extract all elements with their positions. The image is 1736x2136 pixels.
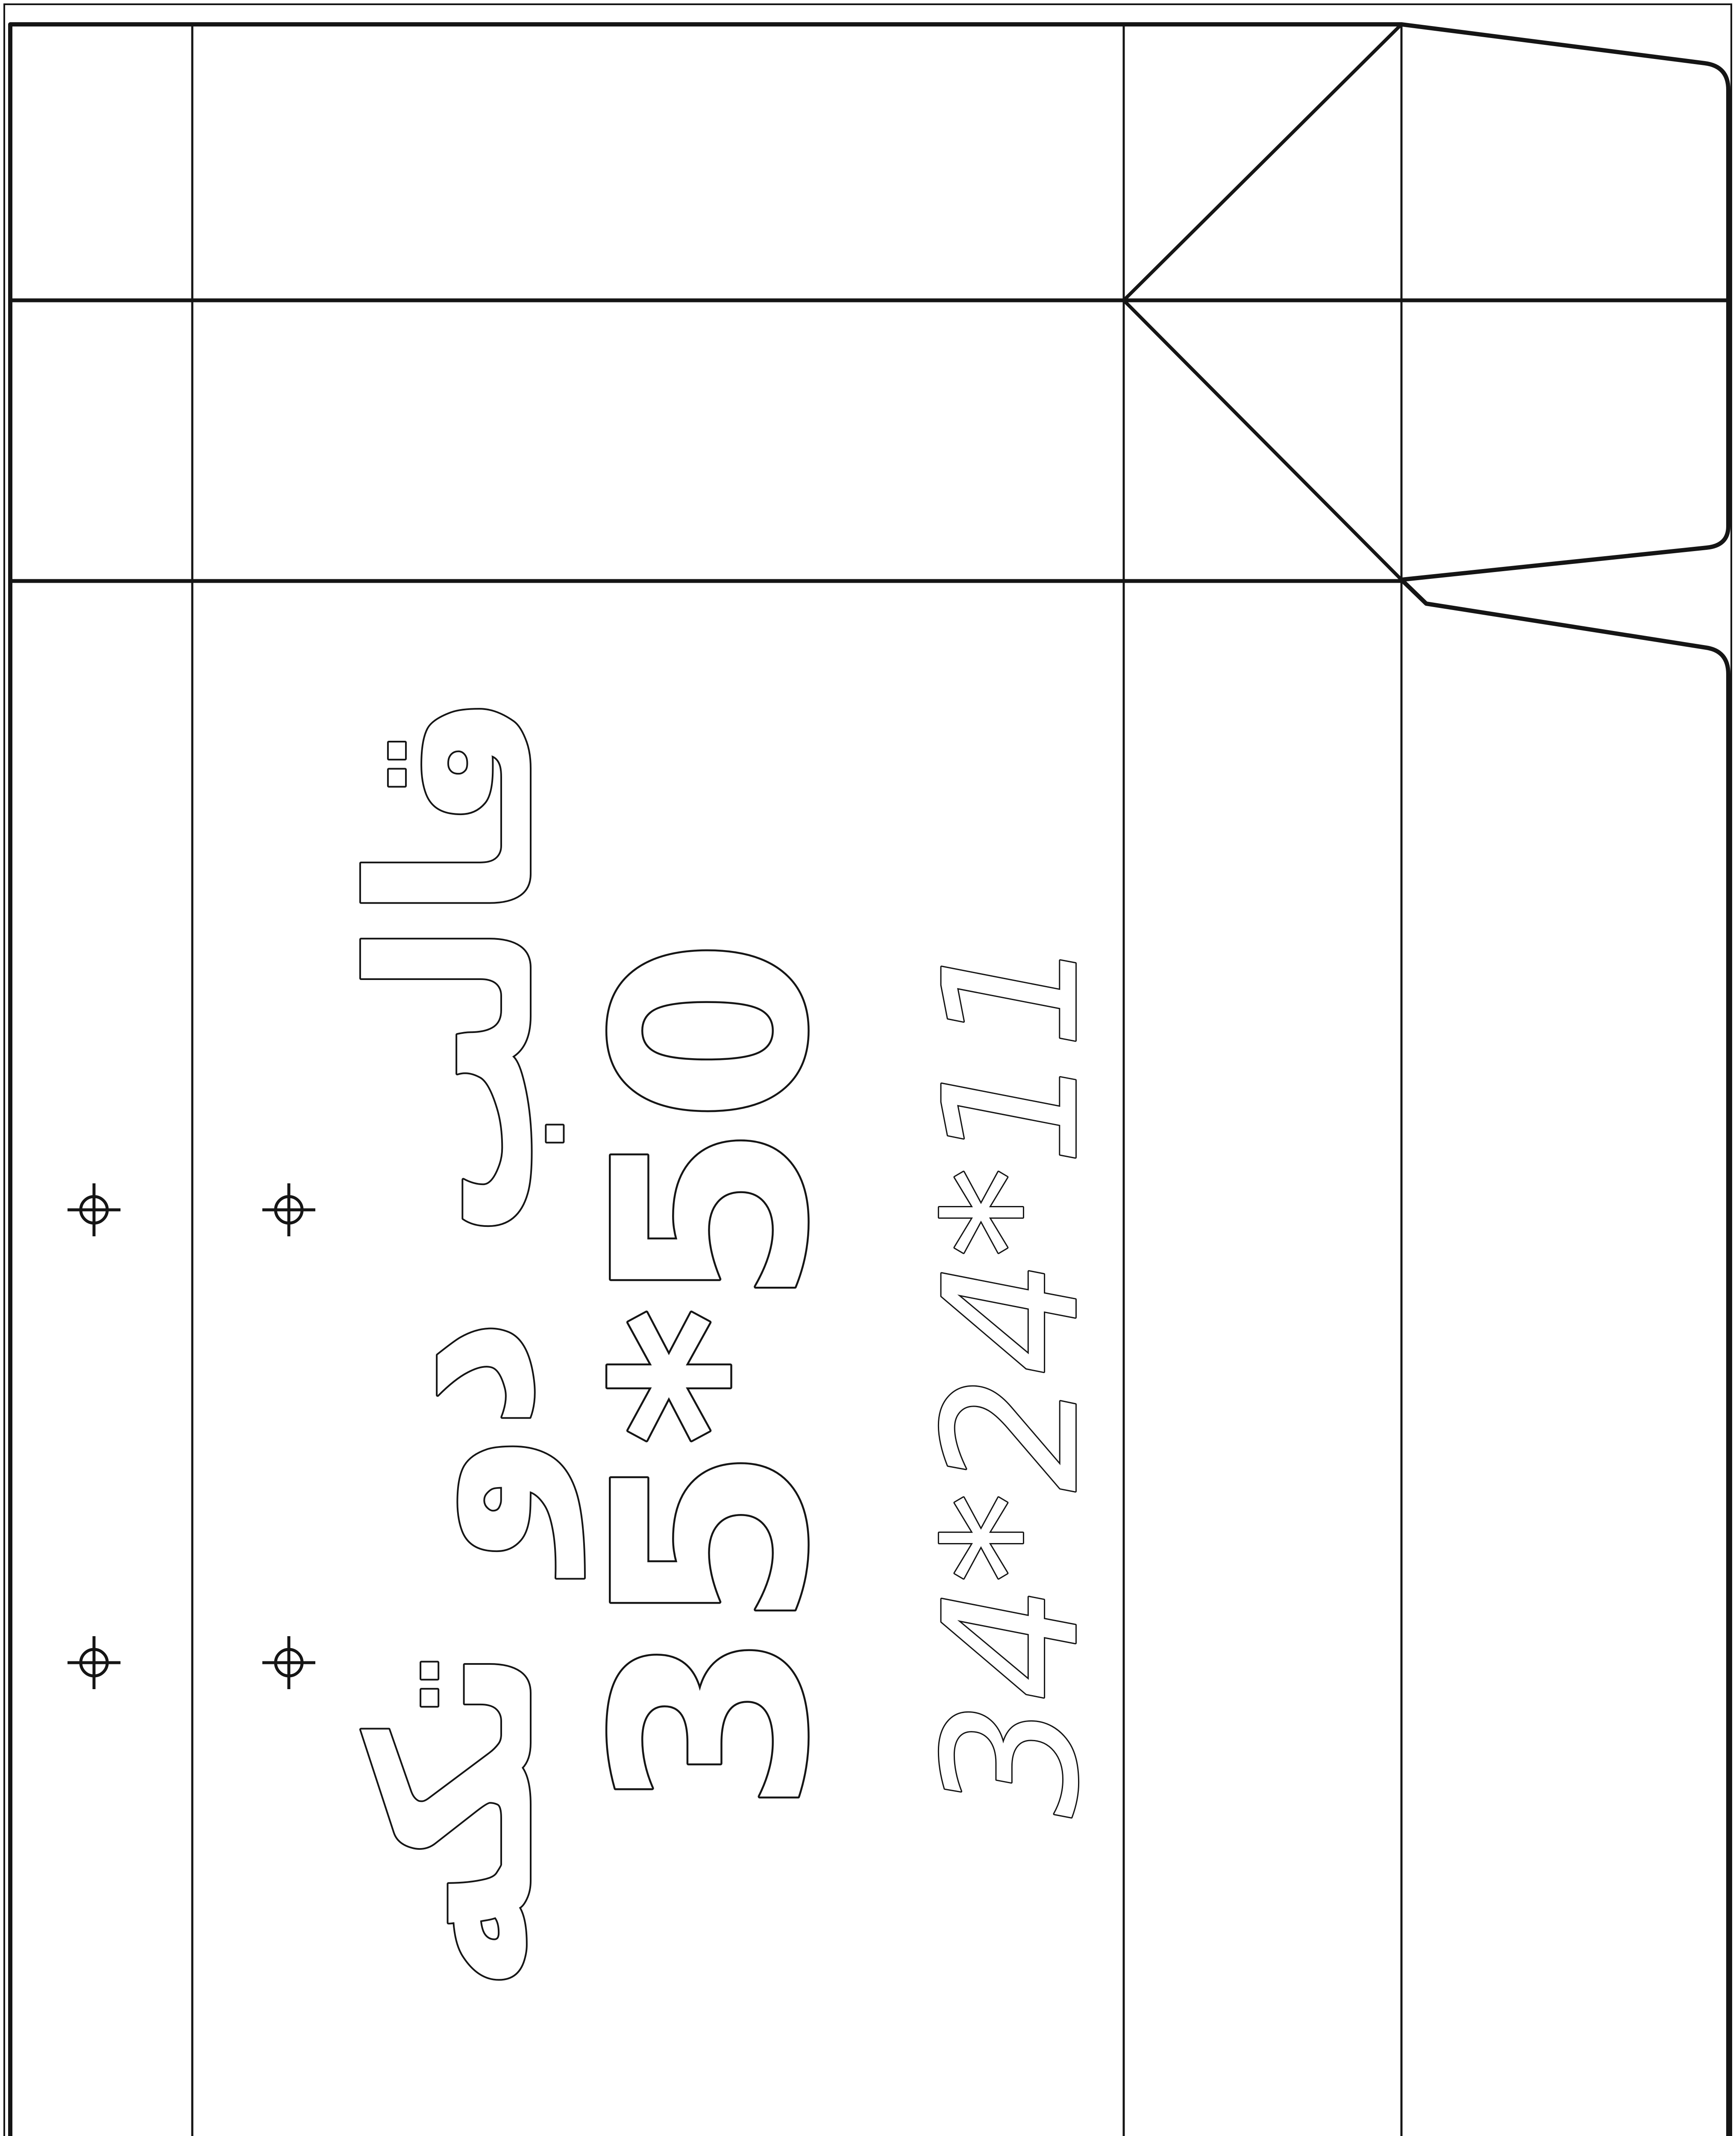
registration-mark-icon [262,1183,315,1236]
dieline-page: قالب دو تکه 35*50 34*24*11 [0,0,1736,2136]
cut-outline [10,24,1728,2136]
label-size-primary: 35*50 [559,939,867,1814]
horizontal-fold-lines [10,300,1728,2136]
label-size-secondary: 34*24*11 [905,933,1119,1817]
dieline-canvas: قالب دو تکه 35*50 34*24*11 [0,0,1736,2136]
registration-mark-icon [68,1183,120,1236]
drawing-root: قالب دو تکه 35*50 34*24*11 [4,4,1731,2136]
registration-mark-icon [68,1636,120,1689]
label-title-fa: قالب دو تکه [323,692,585,1994]
gable-diagonal-upper [1124,24,1401,300]
gable-diagonal-lower [1124,300,1401,580]
registration-mark-icon [262,1636,315,1689]
outer-border [4,4,1731,2136]
